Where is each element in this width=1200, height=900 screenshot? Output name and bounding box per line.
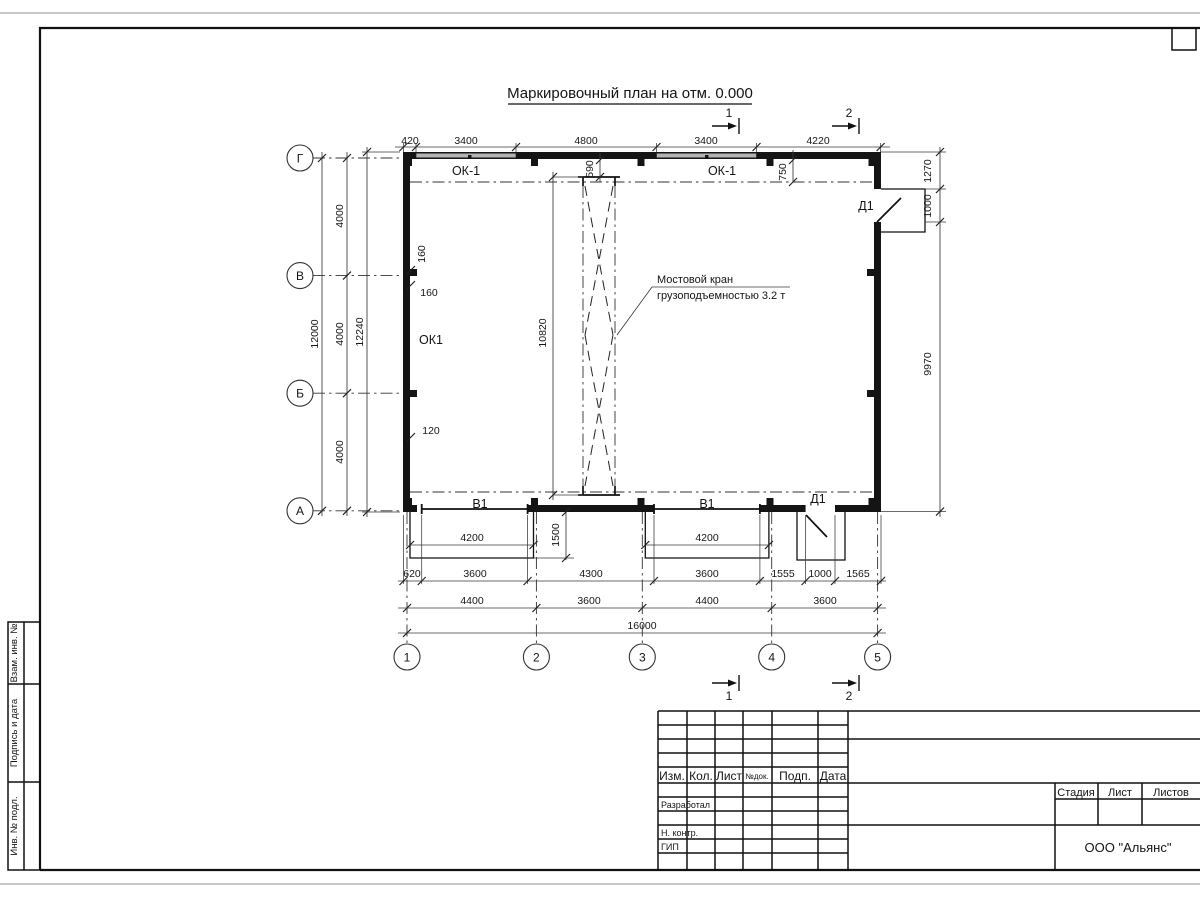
row-axis-label: В xyxy=(296,269,304,283)
dim-label: 1000 xyxy=(808,568,832,580)
crane-note-line1: Мостовой кран xyxy=(657,274,733,286)
sheet-col-header: Листов xyxy=(1153,787,1189,799)
col-axis-label: 2 xyxy=(533,651,540,665)
dimension-labels: 4203400480034004220120004000400040001224… xyxy=(309,135,934,632)
door-type-label: Д1 xyxy=(810,492,825,506)
row-axis-label: Б xyxy=(296,387,304,401)
signature-row-label: ГИП xyxy=(661,842,679,852)
window-mark xyxy=(468,155,472,159)
window-strip-ok1 xyxy=(416,153,516,158)
crane-rail-axes xyxy=(410,182,874,492)
door-leaves xyxy=(806,198,901,537)
dim-label: 620 xyxy=(403,568,421,580)
dim-label: 1555 xyxy=(771,568,795,580)
dim-label: 4220 xyxy=(806,135,830,147)
section-marks: 1 2 1 2 xyxy=(712,106,859,703)
corner-reference-box xyxy=(1172,28,1196,50)
dim-label: 12000 xyxy=(309,319,321,348)
section-mark-number: 2 xyxy=(846,689,853,703)
stamp-box-label: Подпись и дата xyxy=(9,698,20,767)
dim-label: 1565 xyxy=(846,568,870,580)
wall-right-lower xyxy=(874,222,881,512)
dim-label: 4400 xyxy=(695,595,719,607)
axis-bubbles: Г В Б А 1 2 3 4 5 xyxy=(287,145,891,670)
col-axis-label: 4 xyxy=(768,651,775,665)
wall-right-upper xyxy=(874,152,881,189)
revision-col-header: №док. xyxy=(745,772,768,781)
plan-title: Маркировочный план на отм. 0.000 xyxy=(507,85,753,104)
revision-col-header: Лист xyxy=(716,769,743,783)
col-axis-label: 3 xyxy=(639,651,646,665)
crane-bracket-bottom xyxy=(578,486,620,495)
walls xyxy=(403,152,881,512)
stamp-box-label: Взам. инв. № xyxy=(9,624,20,683)
dim-label: 16000 xyxy=(627,620,656,632)
wall-bottom-segment xyxy=(403,505,417,512)
window-mark xyxy=(705,155,709,159)
door-leaf-bottom xyxy=(806,515,827,537)
wall-left xyxy=(403,152,410,512)
dim-label: 9970 xyxy=(922,352,934,376)
element-labels: ОК-1 ОК-1 ОК1 В1 В1 Д1 Д1 xyxy=(419,164,874,511)
section-mark-number: 1 xyxy=(726,106,733,120)
dim-label: 4000 xyxy=(334,322,346,346)
revision-col-header: Подп. xyxy=(779,769,811,783)
columns xyxy=(405,159,876,505)
dim-label: 3600 xyxy=(463,568,487,580)
dim-label: 3600 xyxy=(813,595,837,607)
door-porch-bottom xyxy=(797,512,845,560)
drawing-sheet: Взам. инв. № Подпись и дата Инв. № подл.… xyxy=(0,0,1200,900)
sheet-col-header: Стадия xyxy=(1057,787,1095,799)
col-axis-label: 1 xyxy=(404,651,411,665)
company-name: ООО "Альянс" xyxy=(1085,840,1172,855)
dim-label: 420 xyxy=(401,135,419,147)
paper-edges xyxy=(0,13,1200,884)
dim-label: 1270 xyxy=(922,159,934,183)
door-leaf-top xyxy=(877,198,901,222)
dim-label: 4200 xyxy=(695,532,719,544)
row-axis-label: А xyxy=(296,504,304,518)
dim-label: 3400 xyxy=(454,135,478,147)
dim-label: 4800 xyxy=(574,135,598,147)
dim-label: 3600 xyxy=(577,595,601,607)
dim-label: 3400 xyxy=(694,135,718,147)
dim-label: 120 xyxy=(422,425,440,437)
dim-label: 4300 xyxy=(579,568,603,580)
plan-drawing-canvas: Взам. инв. № Подпись и дата Инв. № подл.… xyxy=(0,0,1200,900)
stamp-strip: Взам. инв. № Подпись и дата Инв. № подл. xyxy=(8,622,40,870)
dim-label: 160 xyxy=(416,245,428,263)
dim-label: 4200 xyxy=(460,532,484,544)
stamp-box-label: Инв. № подл. xyxy=(9,796,20,855)
col-axis-label: 5 xyxy=(874,651,881,665)
bridge-crane xyxy=(578,177,620,495)
dim-label: 3600 xyxy=(695,568,719,580)
dim-label: 4000 xyxy=(334,440,346,464)
door-type-label: Д1 xyxy=(858,199,873,213)
dim-label: 590 xyxy=(584,160,596,178)
signature-row-label: Н. контр. xyxy=(661,828,698,838)
wall-bottom-segment xyxy=(760,505,806,512)
section-mark-number: 1 xyxy=(726,689,733,703)
signature-row-label: Разработал xyxy=(661,800,710,810)
dim-label: 4000 xyxy=(334,204,346,228)
gate-type-label: В1 xyxy=(472,497,487,511)
window-type-label: ОК1 xyxy=(419,333,443,347)
dim-label: 160 xyxy=(420,287,438,299)
revision-col-header: Дата xyxy=(820,769,847,783)
window-type-label: ОК-1 xyxy=(708,164,736,178)
wall-bottom-segment xyxy=(835,505,881,512)
crane-note-line2: грузоподъемностью 3.2 т xyxy=(657,290,785,302)
dim-label: 1500 xyxy=(550,523,562,547)
dim-label: 12240 xyxy=(354,317,366,346)
gate-type-label: В1 xyxy=(699,497,714,511)
wall-bottom-segment xyxy=(528,505,654,512)
revision-col-header: Изм. xyxy=(659,769,685,783)
page-title: Маркировочный план на отм. 0.000 xyxy=(507,85,753,102)
row-axis-label: Г xyxy=(297,152,304,166)
crane-note: Мостовой кран грузоподъемностью 3.2 т xyxy=(617,274,790,335)
window-type-label: ОК-1 xyxy=(452,164,480,178)
sheet-col-header: Лист xyxy=(1108,787,1132,799)
dim-label: 4400 xyxy=(460,595,484,607)
section-mark-number: 2 xyxy=(846,106,853,120)
dim-label: 1000 xyxy=(922,194,934,218)
dim-label: 750 xyxy=(777,163,789,181)
revision-col-header: Кол. xyxy=(689,769,713,783)
title-block: Изм. Кол. Лист №док. Подп. Дата Разработ… xyxy=(658,711,1200,870)
dim-label: 10820 xyxy=(537,318,549,347)
